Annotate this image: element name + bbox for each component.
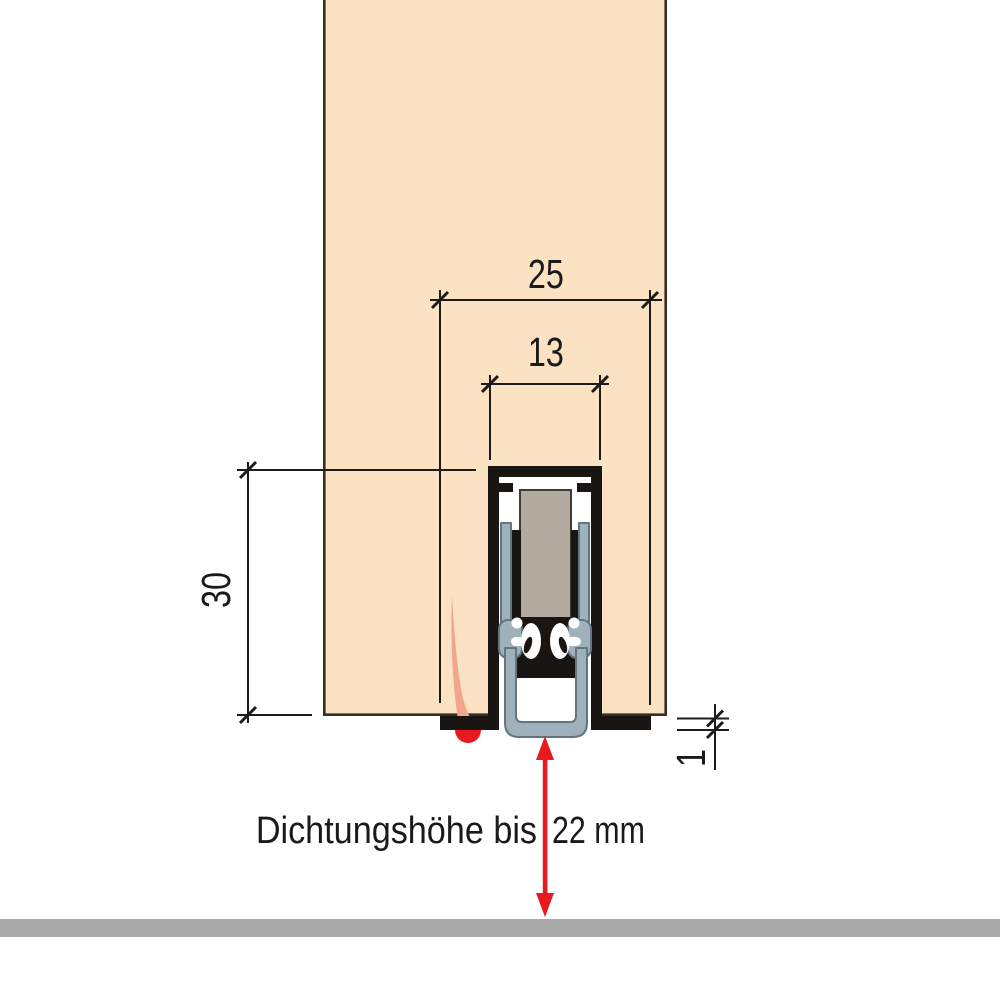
carrier-arm-left xyxy=(501,523,511,633)
seal-height-arrowhead-down xyxy=(536,893,554,917)
door-seal-diagram: 25 13 30 1 Dichtungshöhe bis 22 mm xyxy=(0,0,1000,1000)
seal-height-label: Dichtungshöhe bis xyxy=(256,808,537,851)
housing-clip-tab-left xyxy=(499,483,513,492)
rubber-hook-gap-right xyxy=(569,618,580,629)
floor-bar xyxy=(0,919,1000,937)
rubber-hook-gap-left xyxy=(512,618,523,629)
seal-height-arrowhead-up xyxy=(536,736,554,760)
dimension-1-label: 1 xyxy=(668,749,713,767)
rubber-bar-left xyxy=(512,530,521,622)
seal-height-value: 22 mm xyxy=(552,810,645,852)
sealant-drop xyxy=(455,730,481,743)
dimension-13-label: 13 xyxy=(528,329,564,374)
dimension-30-label: 30 xyxy=(193,572,238,608)
carrier-slot-right xyxy=(567,637,581,646)
carrier-slot-left xyxy=(511,637,525,646)
actuator-block xyxy=(520,490,571,618)
door-seal-diagram-page: 25 13 30 1 Dichtungshöhe bis 22 mm xyxy=(0,0,1000,1000)
carrier-arm-right xyxy=(579,523,589,633)
seal-height-arrow-shaft xyxy=(543,752,548,904)
dimension-25-label: 25 xyxy=(528,251,564,296)
housing-clip-tab-right xyxy=(577,483,591,492)
